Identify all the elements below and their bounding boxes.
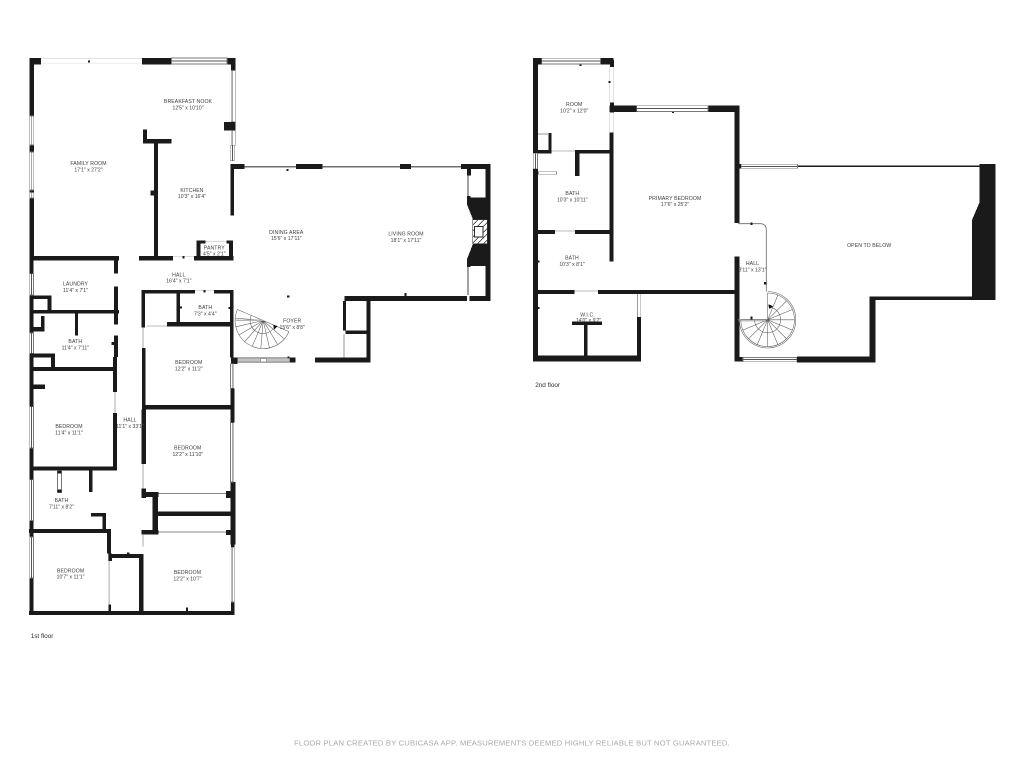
svg-text:BATH: BATH (68, 339, 82, 345)
svg-text:11'4" x 11'1": 11'4" x 11'1" (55, 430, 83, 436)
svg-text:14'0" x 9'2": 14'0" x 9'2" (576, 318, 602, 324)
svg-text:BEDROOM: BEDROOM (174, 446, 201, 452)
svg-text:BEDROOM: BEDROOM (55, 424, 82, 430)
svg-text:PANTRY: PANTRY (204, 246, 225, 252)
svg-text:12'5" x 10'10": 12'5" x 10'10" (172, 105, 203, 111)
svg-text:HALL: HALL (123, 418, 136, 424)
svg-text:ROOM: ROOM (566, 102, 582, 108)
svg-text:HALL: HALL (172, 272, 185, 278)
svg-text:10'3" x 10'11": 10'3" x 10'11" (557, 198, 588, 204)
svg-text:FOYER: FOYER (283, 319, 301, 325)
svg-text:HALL: HALL (746, 261, 759, 267)
svg-text:LIVING ROOM: LIVING ROOM (388, 232, 423, 238)
svg-text:OPEN TO BELOW: OPEN TO BELOW (847, 243, 891, 249)
svg-text:4'5" x 2'1": 4'5" x 2'1" (203, 252, 226, 258)
svg-text:10'7" x 11'1": 10'7" x 11'1" (57, 575, 85, 581)
svg-text:7'11" x 8'2": 7'11" x 8'2" (49, 505, 74, 511)
svg-text:15'6" x 17'11": 15'6" x 17'11" (271, 236, 302, 242)
svg-text:BATH: BATH (565, 256, 579, 262)
svg-text:BREAKFAST NOOK: BREAKFAST NOOK (164, 99, 213, 105)
svg-text:BEDROOM: BEDROOM (174, 570, 201, 576)
svg-text:17'1" x 27'2": 17'1" x 27'2" (74, 167, 102, 173)
svg-text:FAMILY ROOM: FAMILY ROOM (70, 161, 106, 167)
svg-text:16'4" x 7'1": 16'4" x 7'1" (166, 279, 192, 285)
svg-text:12'2" x 10'7": 12'2" x 10'7" (173, 576, 201, 582)
svg-text:KITCHEN: KITCHEN (180, 188, 203, 194)
svg-text:BEDROOM: BEDROOM (57, 568, 84, 574)
svg-text:BEDROOM: BEDROOM (175, 360, 202, 366)
svg-text:17'6" x 25'2": 17'6" x 25'2" (661, 202, 689, 208)
svg-text:2nd floor: 2nd floor (535, 382, 561, 389)
svg-text:7'3" x 4'4": 7'3" x 4'4" (194, 311, 217, 317)
svg-text:11'4" x 7'11": 11'4" x 7'11" (62, 346, 90, 352)
svg-text:12'2" x 11'2": 12'2" x 11'2" (175, 367, 203, 373)
svg-text:FLOOR PLAN CREATED BY CUBICASA: FLOOR PLAN CREATED BY CUBICASA APP. MEAS… (294, 739, 730, 748)
svg-text:18'1" x 17'11": 18'1" x 17'11" (391, 238, 422, 244)
svg-text:LAUNDRY: LAUNDRY (63, 282, 89, 288)
svg-text:1st floor: 1st floor (31, 633, 55, 640)
svg-text:15'6" x 8'8": 15'6" x 8'8" (280, 325, 306, 331)
svg-text:11'4" x 7'1": 11'4" x 7'1" (63, 288, 88, 294)
svg-text:11'1" x 33'1": 11'1" x 33'1" (116, 424, 144, 430)
svg-text:12'2" x 11'10": 12'2" x 11'10" (172, 452, 203, 458)
svg-text:10'3" x 8'1": 10'3" x 8'1" (559, 262, 585, 268)
svg-text:10'2" x 12'0": 10'2" x 12'0" (560, 108, 588, 114)
svg-text:BATH: BATH (198, 305, 212, 311)
svg-text:BATH: BATH (55, 498, 69, 504)
svg-text:3'11" x 13'1": 3'11" x 13'1" (739, 267, 767, 273)
svg-text:10'3" x 16'4": 10'3" x 16'4" (178, 194, 206, 200)
svg-text:DINING AREA: DINING AREA (269, 230, 304, 236)
svg-text:PRIMARY BEDROOM: PRIMARY BEDROOM (649, 196, 702, 202)
svg-text:BATH: BATH (565, 191, 579, 197)
